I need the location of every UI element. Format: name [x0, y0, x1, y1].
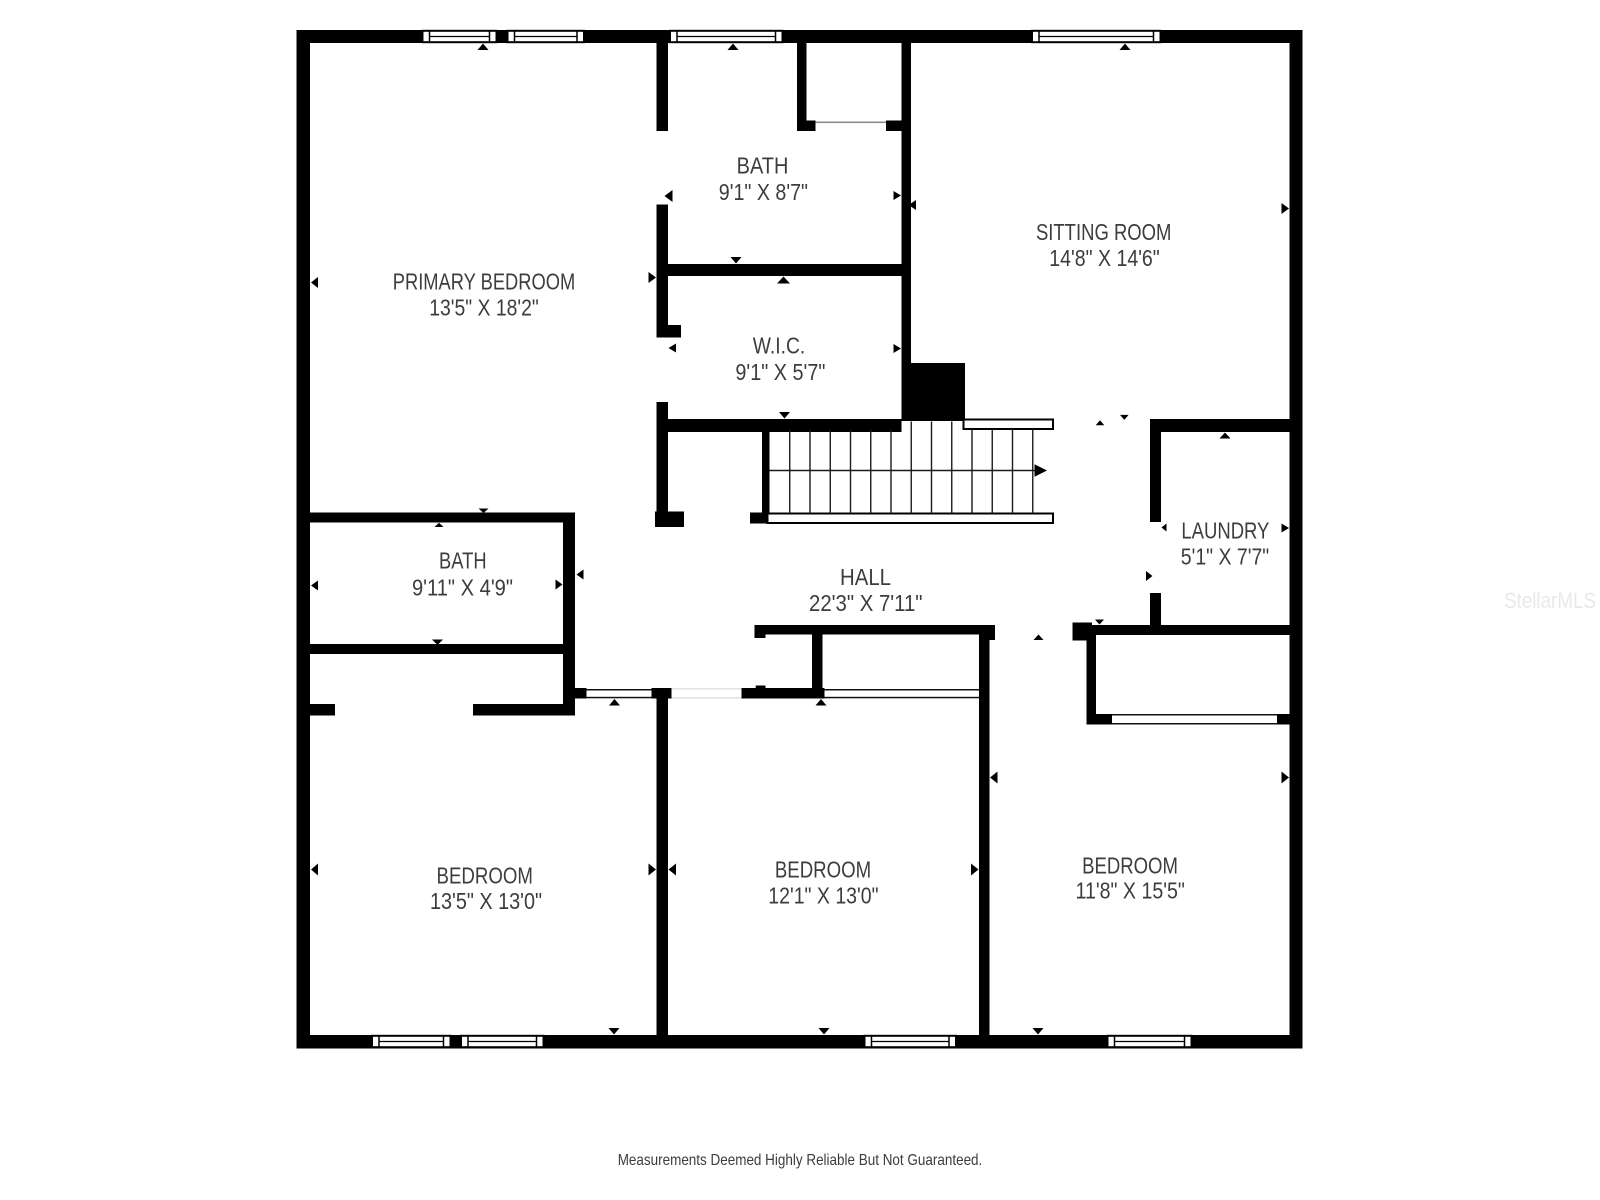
svg-text:BEDROOM: BEDROOM	[1082, 852, 1178, 878]
svg-text:Measurements Deemed Highly Rel: Measurements Deemed Highly Reliable But …	[618, 1152, 983, 1169]
svg-text:14'8" X 14'6": 14'8" X 14'6"	[1049, 245, 1160, 271]
svg-text:W.I.C.: W.I.C.	[753, 333, 806, 359]
svg-text:StellarMLS: StellarMLS	[1504, 588, 1596, 613]
svg-text:PRIMARY BEDROOM: PRIMARY BEDROOM	[393, 269, 575, 295]
svg-text:5'1" X 7'7": 5'1" X 7'7"	[1181, 544, 1269, 570]
svg-text:9'1" X 8'7": 9'1" X 8'7"	[719, 179, 808, 205]
svg-text:BATH: BATH	[439, 548, 487, 574]
svg-text:13'5" X 18'2": 13'5" X 18'2"	[429, 295, 539, 321]
svg-text:LAUNDRY: LAUNDRY	[1181, 517, 1269, 543]
svg-text:BATH: BATH	[737, 153, 789, 179]
svg-text:9'1" X 5'7": 9'1" X 5'7"	[735, 359, 825, 385]
svg-text:22'3" X 7'11": 22'3" X 7'11"	[809, 590, 923, 616]
svg-text:13'5" X 13'0": 13'5" X 13'0"	[430, 888, 542, 914]
svg-text:11'8" X 15'5": 11'8" X 15'5"	[1076, 878, 1185, 904]
svg-text:BEDROOM: BEDROOM	[437, 862, 533, 888]
svg-text:SITTING ROOM: SITTING ROOM	[1036, 219, 1172, 245]
svg-text:HALL: HALL	[840, 564, 891, 590]
svg-text:9'11" X 4'9": 9'11" X 4'9"	[412, 575, 513, 601]
svg-text:12'1" X 13'0": 12'1" X 13'0"	[768, 883, 878, 909]
svg-text:BEDROOM: BEDROOM	[775, 857, 871, 883]
